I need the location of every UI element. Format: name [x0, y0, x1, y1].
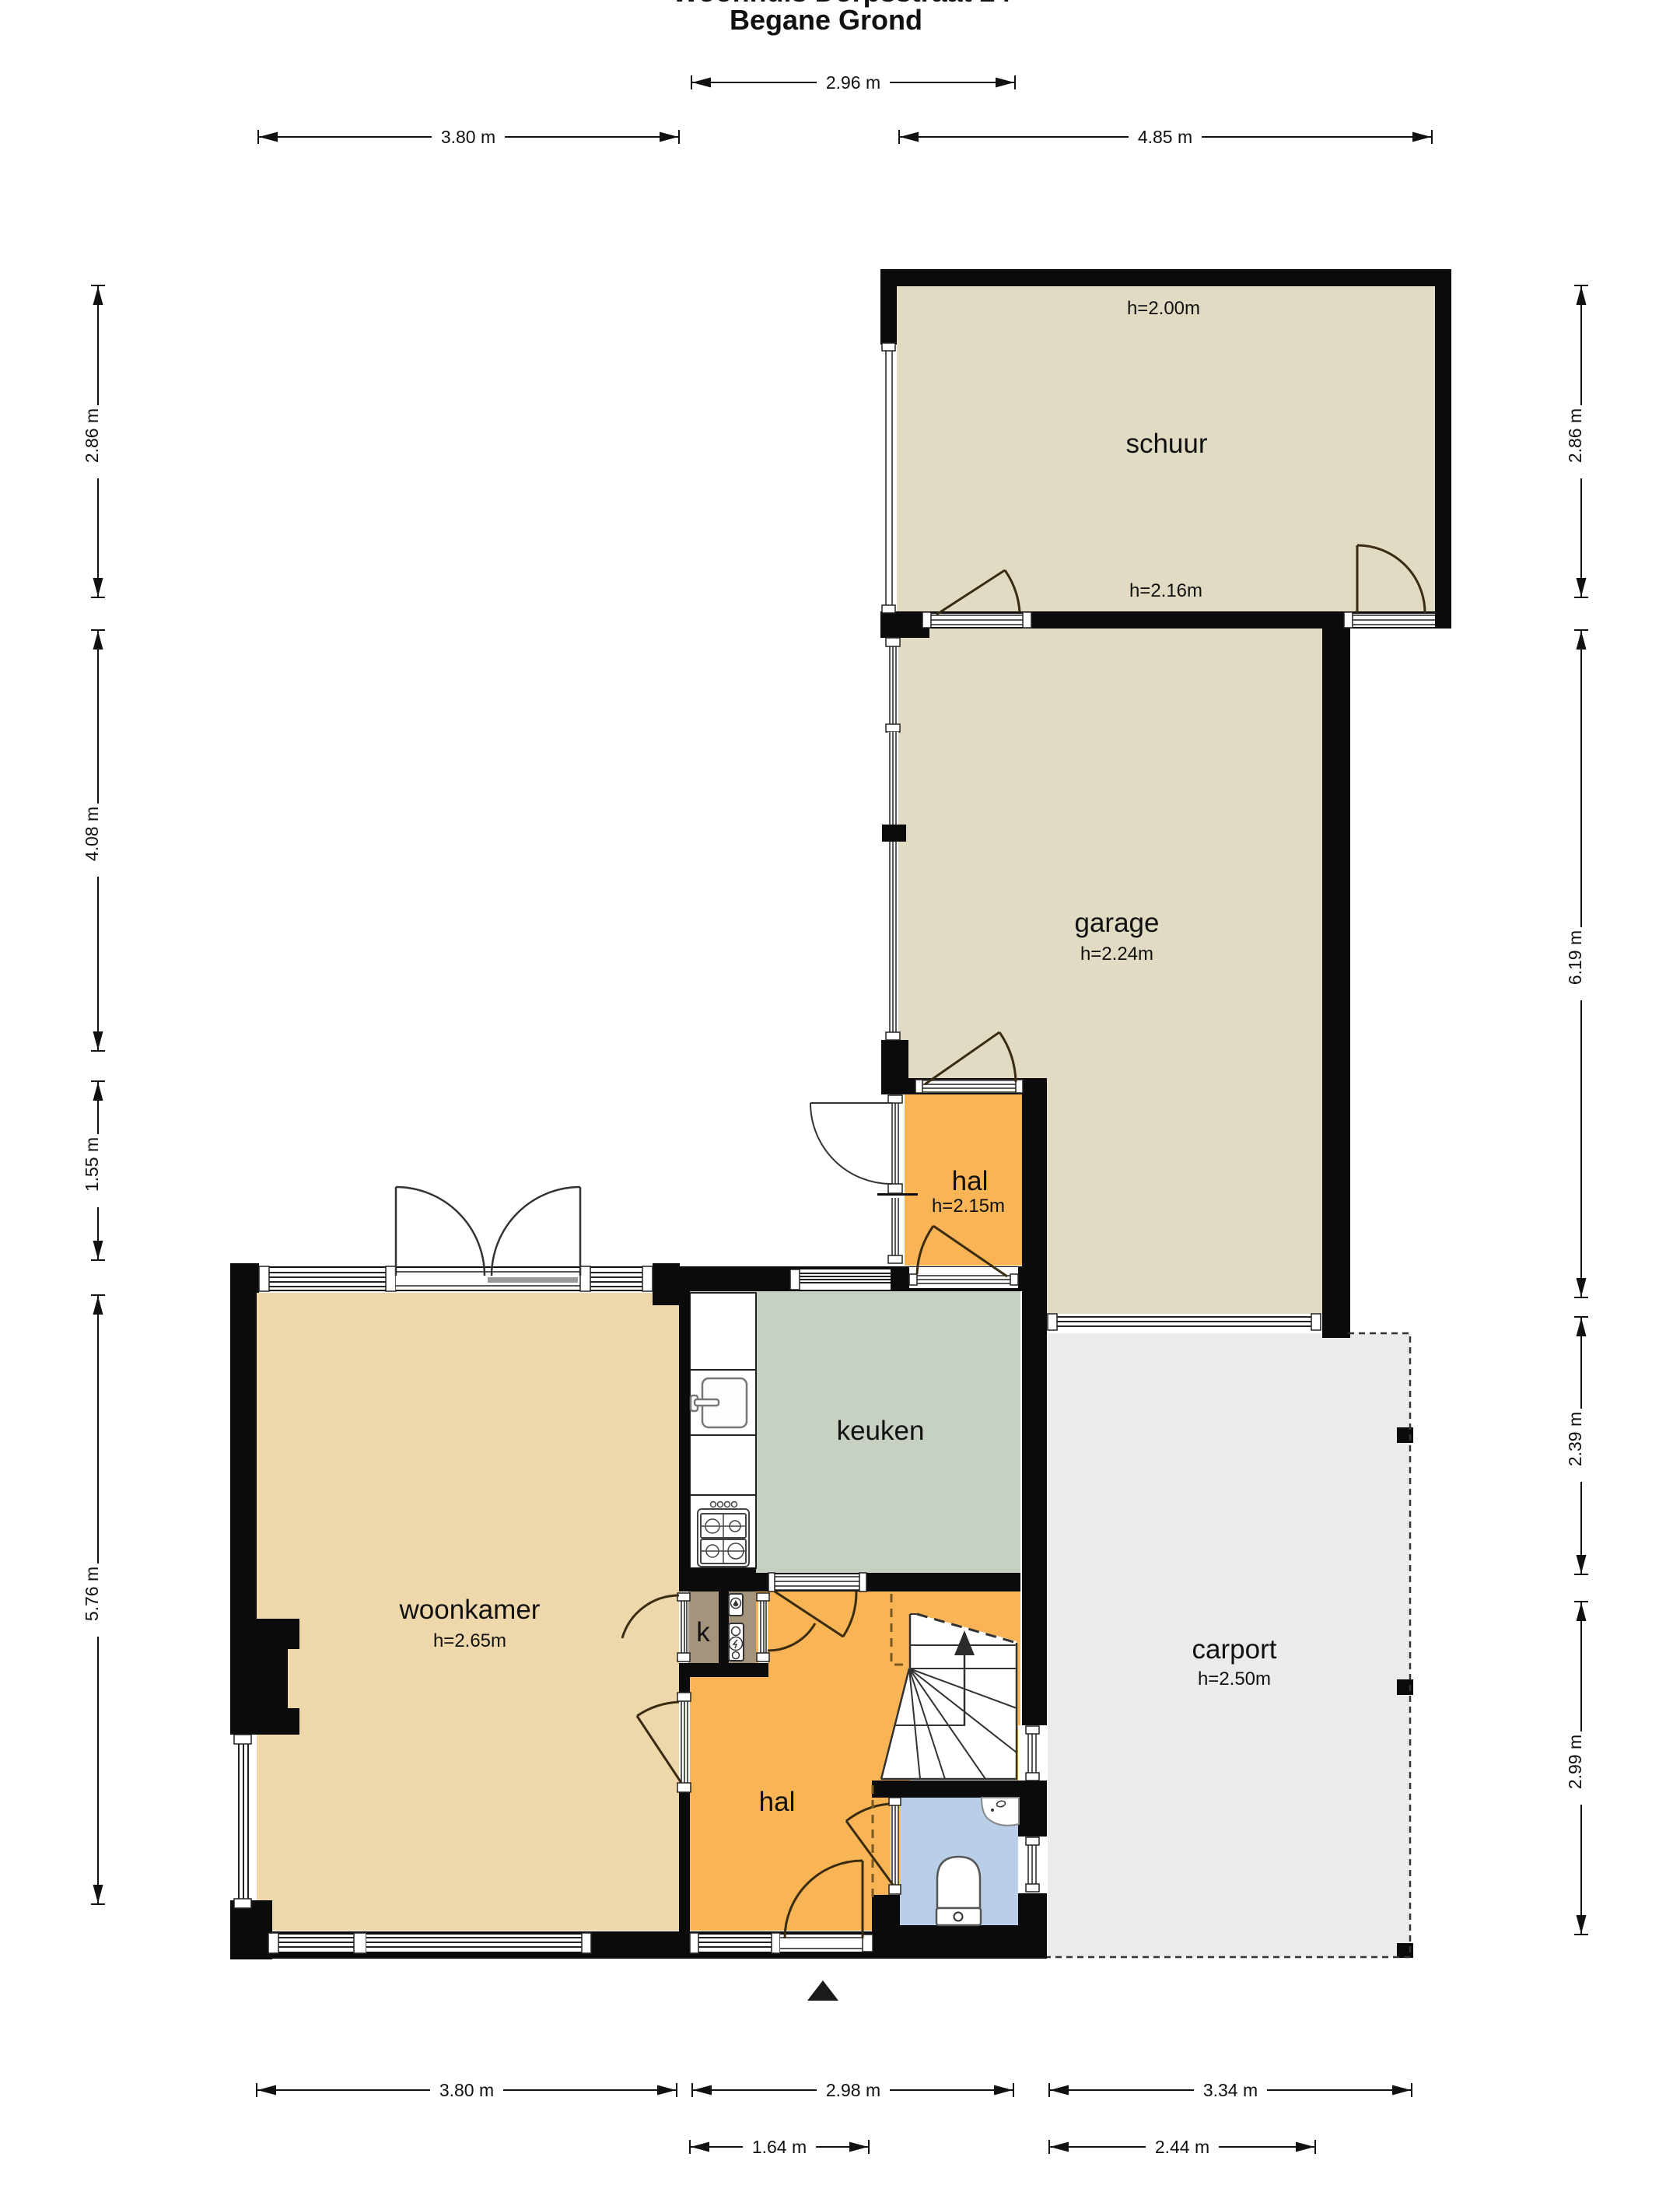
- svg-text:3.34 m: 3.34 m: [1203, 2080, 1258, 2100]
- svg-text:garage: garage: [1075, 908, 1160, 938]
- svg-text:1.55 m: 1.55 m: [82, 1137, 102, 1192]
- svg-text:hal: hal: [759, 1787, 796, 1817]
- svg-text:4.08 m: 4.08 m: [82, 807, 102, 861]
- svg-text:2.98 m: 2.98 m: [826, 2080, 880, 2100]
- svg-text:6.19 m: 6.19 m: [1565, 930, 1585, 985]
- svg-text:h=2.65m: h=2.65m: [433, 1630, 506, 1651]
- svg-text:hal: hal: [952, 1166, 989, 1196]
- svg-text:2.44 m: 2.44 m: [1155, 2137, 1209, 2157]
- svg-text:2.99 m: 2.99 m: [1565, 1735, 1585, 1789]
- svg-text:5.76 m: 5.76 m: [82, 1567, 102, 1621]
- svg-text:h=2.16m: h=2.16m: [1129, 580, 1202, 601]
- svg-text:3.80 m: 3.80 m: [441, 127, 495, 147]
- svg-text:2.96 m: 2.96 m: [826, 72, 880, 93]
- svg-text:h=2.00m: h=2.00m: [1127, 298, 1200, 319]
- svg-text:k: k: [696, 1617, 710, 1648]
- svg-text:1.64 m: 1.64 m: [752, 2137, 807, 2157]
- svg-text:2.39 m: 2.39 m: [1565, 1412, 1585, 1466]
- svg-text:h=2.50m: h=2.50m: [1198, 1669, 1271, 1690]
- svg-text:4.85 m: 4.85 m: [1138, 127, 1192, 147]
- svg-text:h=2.15m: h=2.15m: [932, 1196, 1005, 1217]
- svg-text:Begane Grond: Begane Grond: [730, 4, 922, 36]
- svg-text:3.80 m: 3.80 m: [439, 2080, 494, 2100]
- svg-text:woonkamer: woonkamer: [399, 1595, 541, 1625]
- svg-text:schuur: schuur: [1125, 429, 1207, 459]
- svg-text:2.86 m: 2.86 m: [1565, 408, 1585, 463]
- svg-text:keuken: keuken: [837, 1416, 925, 1446]
- svg-text:2.86 m: 2.86 m: [82, 408, 102, 463]
- svg-text:carport: carport: [1192, 1634, 1277, 1665]
- svg-text:h=2.24m: h=2.24m: [1080, 944, 1153, 965]
